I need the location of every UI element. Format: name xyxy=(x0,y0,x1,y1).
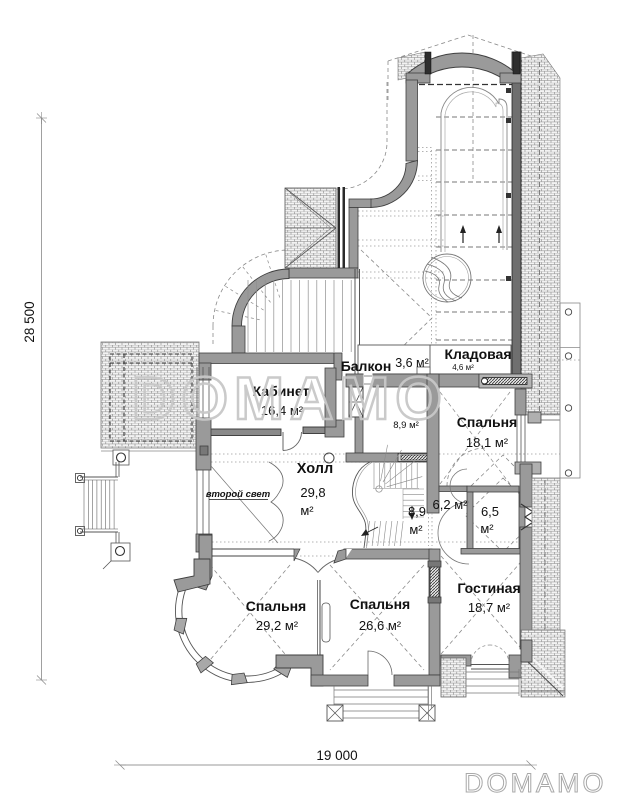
svg-text:6,2 м²: 6,2 м² xyxy=(433,497,469,512)
svg-text:второй свет: второй свет xyxy=(206,489,271,500)
svg-text:Гостиная: Гостиная xyxy=(457,580,520,596)
svg-text:28 500: 28 500 xyxy=(22,301,37,342)
svg-text:26,6 м²: 26,6 м² xyxy=(359,618,402,633)
svg-text:Спальня: Спальня xyxy=(350,596,410,612)
svg-text:8,9: 8,9 xyxy=(408,504,426,519)
svg-text:18,1 м²: 18,1 м² xyxy=(466,435,509,450)
svg-text:29,8: 29,8 xyxy=(300,485,325,500)
svg-text:19 000: 19 000 xyxy=(316,748,357,763)
svg-text:DOMAMO: DOMAMO xyxy=(464,768,607,798)
svg-text:4,6 м²: 4,6 м² xyxy=(452,363,474,372)
svg-text:Кладовая: Кладовая xyxy=(444,346,511,362)
svg-text:DOMAMO: DOMAMO xyxy=(132,365,448,432)
svg-text:6,5: 6,5 xyxy=(481,504,499,519)
svg-text:Спальня: Спальня xyxy=(457,414,517,430)
svg-text:Холл: Холл xyxy=(297,461,333,477)
svg-text:Спальня: Спальня xyxy=(246,598,306,614)
svg-text:м²: м² xyxy=(300,503,314,518)
svg-text:м²: м² xyxy=(480,521,494,536)
svg-text:м²: м² xyxy=(409,522,423,537)
svg-text:18,7 м²: 18,7 м² xyxy=(468,600,511,615)
svg-text:29,2 м²: 29,2 м² xyxy=(256,618,299,633)
